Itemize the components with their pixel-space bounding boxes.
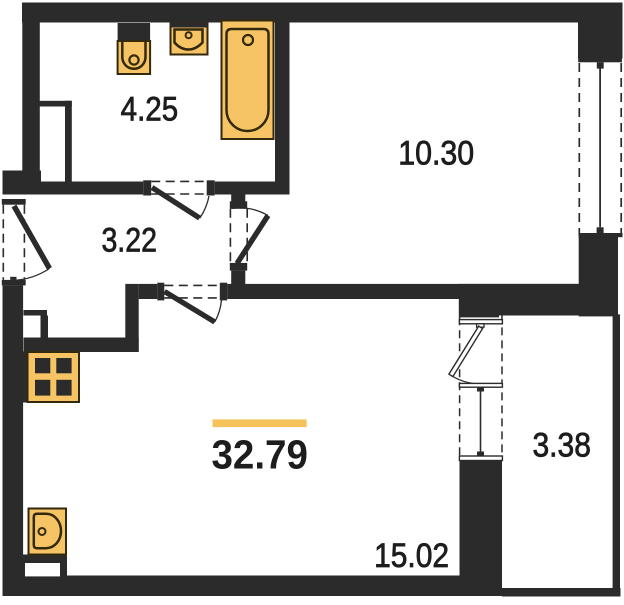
- svg-text:4.25: 4.25: [121, 90, 179, 128]
- svg-text:3.22: 3.22: [101, 222, 157, 260]
- svg-text:15.02: 15.02: [374, 537, 449, 575]
- svg-text:3.38: 3.38: [532, 427, 591, 465]
- svg-text:32.79: 32.79: [211, 432, 308, 478]
- svg-text:10.30: 10.30: [398, 135, 474, 173]
